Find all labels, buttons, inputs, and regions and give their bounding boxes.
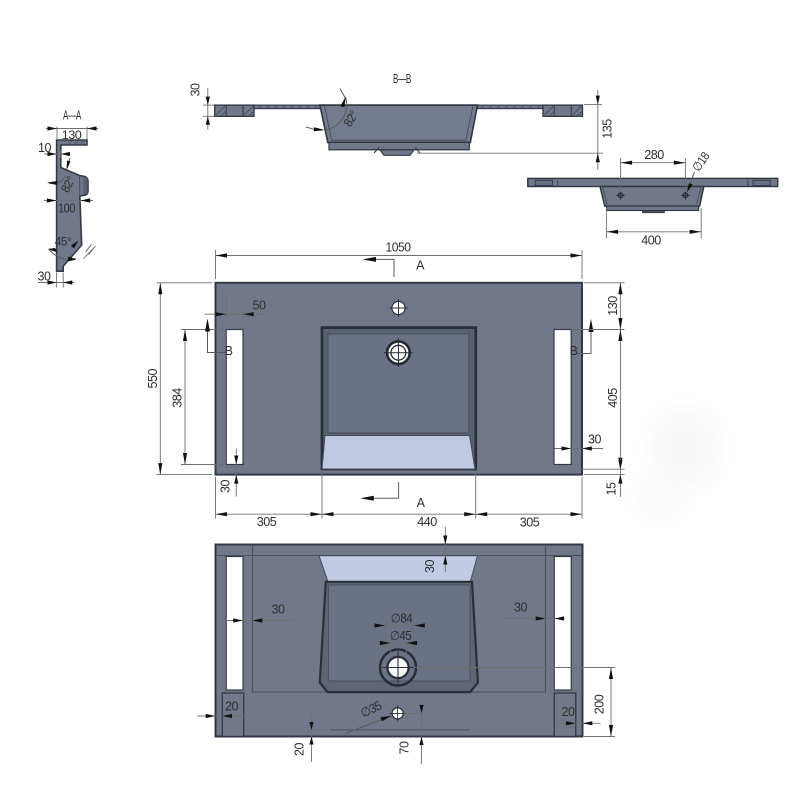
svg-text:A: A — [416, 259, 425, 273]
svg-text:30: 30 — [272, 603, 285, 617]
svg-text:100: 100 — [58, 202, 75, 216]
svg-text:A—A: A—A — [63, 108, 82, 123]
svg-text:30: 30 — [219, 480, 233, 493]
svg-text:15: 15 — [604, 482, 618, 495]
svg-text:45°: 45° — [55, 235, 72, 249]
svg-text:30: 30 — [38, 270, 51, 284]
svg-text:130: 130 — [606, 296, 620, 316]
svg-text:280: 280 — [644, 148, 664, 162]
svg-text:∅84: ∅84 — [391, 612, 413, 626]
svg-text:10: 10 — [38, 141, 51, 155]
svg-text:400: 400 — [641, 234, 661, 248]
svg-text:50: 50 — [253, 299, 266, 313]
svg-text:384: 384 — [171, 388, 185, 408]
svg-text:305: 305 — [520, 516, 540, 530]
svg-text:30: 30 — [514, 601, 527, 615]
svg-text:1050: 1050 — [386, 241, 412, 255]
svg-text:30: 30 — [588, 433, 601, 447]
svg-text:B—B: B—B — [393, 71, 411, 86]
svg-text:20: 20 — [225, 700, 238, 714]
svg-text:135: 135 — [601, 119, 615, 139]
svg-text:440: 440 — [417, 515, 437, 529]
svg-text:20: 20 — [562, 705, 575, 719]
svg-text:200: 200 — [593, 694, 607, 714]
svg-text:∅45: ∅45 — [390, 629, 412, 643]
svg-text:20: 20 — [293, 743, 307, 756]
svg-text:30: 30 — [423, 560, 437, 573]
svg-text:305: 305 — [257, 515, 277, 529]
svg-text:130: 130 — [62, 130, 82, 142]
svg-text:B: B — [225, 344, 233, 358]
svg-text:405: 405 — [606, 388, 620, 408]
svg-text:70: 70 — [398, 741, 412, 754]
svg-text:550: 550 — [146, 368, 160, 388]
svg-text:B: B — [570, 344, 578, 358]
svg-text:30: 30 — [189, 83, 203, 96]
svg-text:A: A — [417, 496, 426, 510]
